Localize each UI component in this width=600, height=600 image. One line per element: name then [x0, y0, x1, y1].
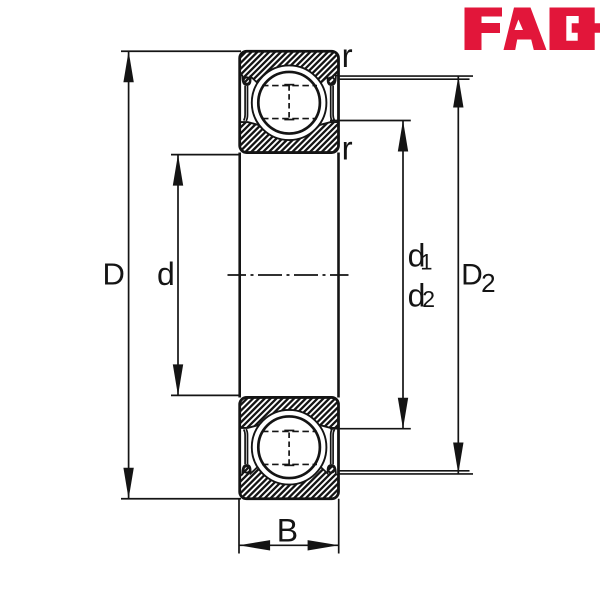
- svg-text:r: r: [342, 37, 353, 74]
- svg-text:d: d: [157, 256, 175, 292]
- svg-text:D: D: [103, 256, 125, 291]
- svg-text:2: 2: [422, 286, 435, 312]
- svg-text:r: r: [342, 130, 353, 167]
- svg-text:1: 1: [420, 250, 432, 275]
- svg-text:D: D: [461, 258, 483, 291]
- svg-text:B: B: [277, 513, 298, 549]
- svg-text:2: 2: [481, 268, 495, 298]
